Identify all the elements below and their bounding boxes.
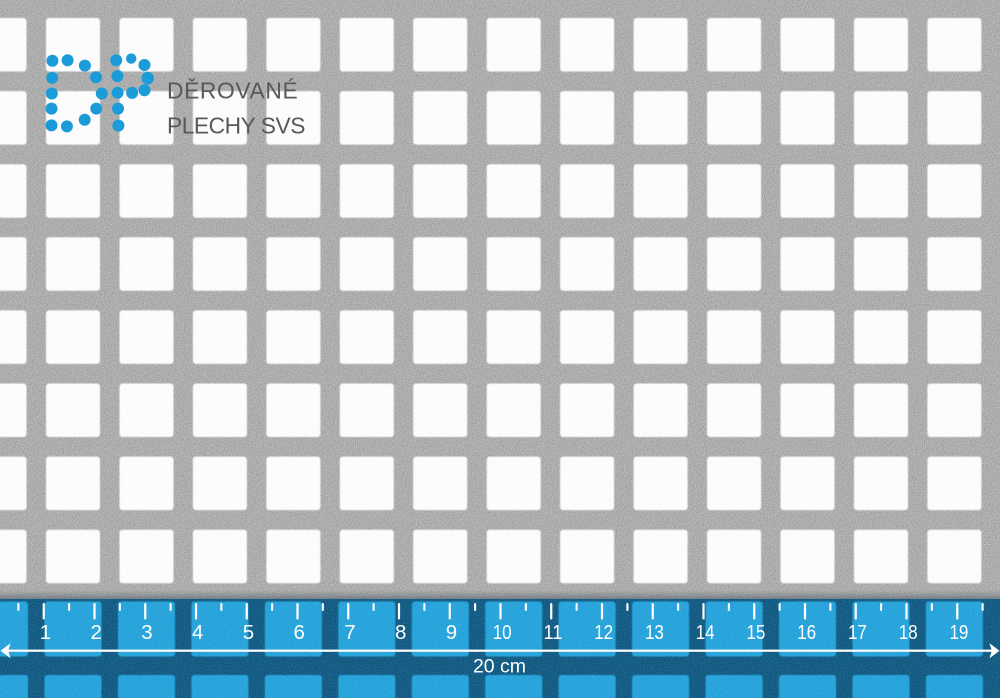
svg-text:11: 11: [543, 621, 562, 644]
svg-text:6: 6: [293, 621, 304, 644]
svg-text:15: 15: [746, 621, 765, 644]
svg-text:2: 2: [90, 621, 101, 644]
svg-text:5: 5: [243, 621, 254, 644]
svg-text:17: 17: [848, 621, 867, 644]
svg-text:19: 19: [949, 621, 968, 644]
svg-text:3: 3: [141, 621, 152, 644]
svg-text:10: 10: [493, 621, 512, 644]
svg-text:PLECHY SVS: PLECHY SVS: [167, 112, 305, 138]
svg-text:DĚROVANÉ: DĚROVANÉ: [167, 78, 298, 104]
svg-text:1: 1: [40, 621, 51, 644]
svg-text:7: 7: [344, 621, 355, 644]
svg-text:13: 13: [645, 621, 664, 644]
svg-text:14: 14: [696, 621, 715, 644]
svg-text:8: 8: [395, 621, 406, 644]
svg-text:9: 9: [446, 621, 457, 644]
svg-text:20 cm: 20 cm: [473, 656, 526, 678]
svg-text:12: 12: [594, 621, 613, 644]
svg-text:16: 16: [797, 621, 816, 644]
svg-text:18: 18: [899, 621, 918, 644]
svg-text:4: 4: [192, 621, 203, 644]
